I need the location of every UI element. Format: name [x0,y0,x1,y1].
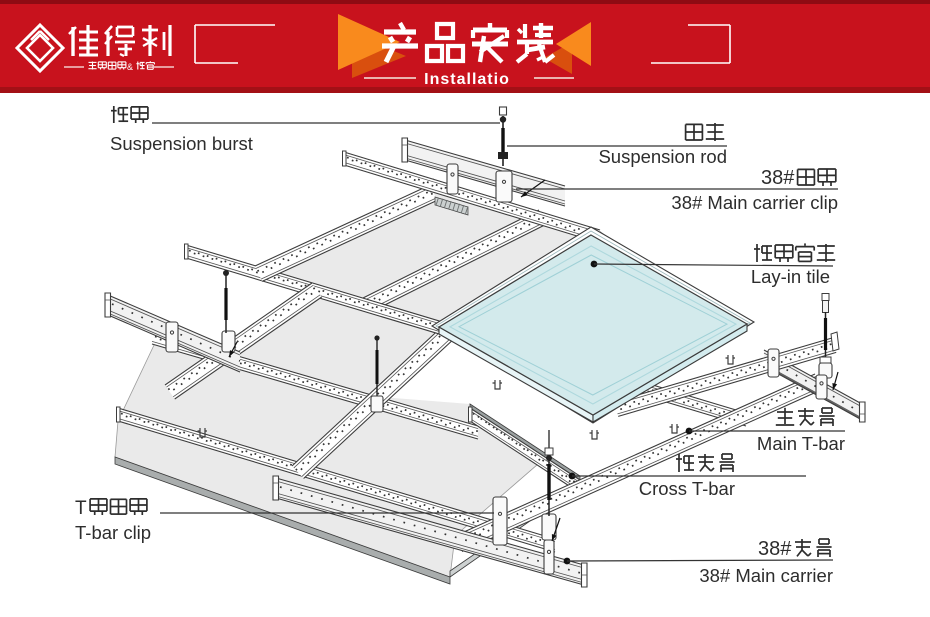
svg-text:T-bar clip: T-bar clip [75,522,151,543]
svg-text:Lay-in tile: Lay-in tile [751,266,830,287]
svg-text:Main T-bar: Main T-bar [757,433,845,454]
svg-text:Installatio: Installatio [424,71,510,88]
svg-text:&: & [127,62,133,72]
svg-text:Suspension rod: Suspension rod [598,146,727,167]
svg-text:38#: 38# [758,538,792,560]
svg-text:T: T [75,498,87,519]
svg-text:Cross T-bar: Cross T-bar [639,478,735,499]
svg-text:38# Main carrier: 38# Main carrier [699,565,833,586]
svg-text:38# Main carrier clip: 38# Main carrier clip [671,192,838,213]
svg-text:38#: 38# [761,167,795,189]
svg-text:Suspension burst: Suspension burst [110,133,253,154]
